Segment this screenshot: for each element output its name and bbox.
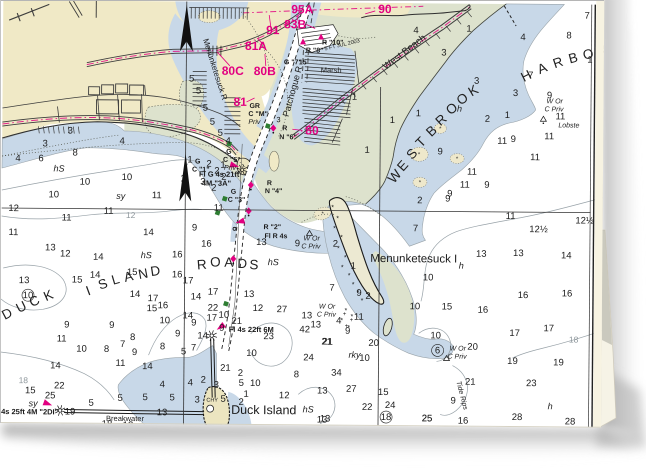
svg-text:C "3": C "3"	[228, 197, 246, 204]
svg-text:13: 13	[476, 249, 487, 260]
svg-text:N "4": N "4"	[265, 188, 283, 195]
svg-text:95A: 95A	[291, 2, 313, 16]
svg-text:16: 16	[158, 300, 169, 311]
svg-text:12: 12	[8, 203, 19, 214]
svg-text:A: A	[224, 255, 233, 270]
svg-text:13: 13	[256, 237, 267, 248]
svg-text:9: 9	[192, 223, 197, 234]
svg-text:5: 5	[196, 86, 201, 97]
svg-text:15: 15	[25, 385, 36, 396]
svg-text:27: 27	[346, 384, 357, 395]
svg-text:*: *	[336, 216, 339, 223]
svg-text:15: 15	[442, 301, 453, 312]
svg-text:10: 10	[23, 290, 34, 301]
svg-text:4s 25ft 4M "2DI": 4s 25ft 4M "2DI"	[1, 407, 59, 416]
svg-text:5: 5	[143, 392, 148, 403]
svg-text:3: 3	[200, 177, 205, 188]
svg-text:9: 9	[445, 193, 450, 204]
svg-text:4: 4	[160, 379, 165, 390]
svg-text:14: 14	[561, 250, 572, 261]
svg-text:21: 21	[321, 337, 332, 348]
svg-text:4: 4	[413, 25, 418, 36]
svg-text:11: 11	[57, 333, 67, 344]
svg-text:10: 10	[80, 177, 91, 188]
svg-text:15: 15	[378, 387, 389, 398]
svg-text:16: 16	[201, 239, 212, 250]
svg-text:W Or: W Or	[303, 235, 320, 242]
svg-text:8: 8	[160, 341, 165, 352]
svg-text:18: 18	[381, 412, 392, 423]
svg-text:16: 16	[562, 288, 573, 299]
svg-text:Lobste: Lobste	[558, 122, 579, 129]
svg-text:15: 15	[147, 303, 158, 314]
svg-text:11: 11	[555, 111, 565, 122]
svg-text:Fl R 4s: Fl R 4s	[264, 233, 287, 240]
svg-text:R: R	[196, 257, 207, 273]
svg-text:10: 10	[430, 330, 441, 341]
svg-text:hS: hS	[141, 250, 152, 260]
svg-text:9: 9	[219, 323, 224, 334]
svg-text:14: 14	[191, 291, 202, 302]
svg-text:5: 5	[203, 103, 208, 114]
svg-text:5: 5	[210, 117, 215, 128]
svg-text:9: 9	[437, 146, 442, 157]
svg-text:W Or: W Or	[319, 304, 336, 311]
svg-text:1: 1	[466, 24, 471, 35]
svg-text:hS: hS	[268, 257, 279, 267]
svg-text:11: 11	[62, 212, 72, 223]
svg-text:14: 14	[50, 360, 61, 371]
svg-text:S: S	[249, 257, 259, 272]
svg-text:90: 90	[378, 2, 392, 16]
svg-text:R "8": R "8"	[306, 47, 324, 54]
svg-text:80: 80	[305, 123, 319, 137]
svg-text:8: 8	[566, 30, 571, 41]
svg-text:12: 12	[126, 210, 136, 220]
svg-text:10: 10	[48, 189, 59, 200]
svg-text:8: 8	[130, 332, 135, 343]
svg-text:C "M": C "M"	[248, 111, 268, 118]
svg-text:8: 8	[294, 369, 299, 380]
svg-text:17: 17	[509, 328, 520, 339]
svg-text:3: 3	[441, 47, 446, 58]
svg-text:5: 5	[239, 378, 244, 389]
svg-text:hS: hS	[53, 163, 64, 173]
svg-text:25: 25	[422, 413, 433, 424]
svg-text:2: 2	[485, 114, 490, 125]
svg-text:80C: 80C	[222, 64, 244, 78]
svg-text:16: 16	[458, 416, 469, 427]
svg-text:10: 10	[250, 378, 261, 389]
svg-text:4: 4	[336, 316, 341, 327]
svg-text:R "2": R "2"	[264, 224, 282, 231]
svg-text:*: *	[341, 265, 344, 272]
svg-text:11: 11	[467, 167, 477, 178]
svg-text:2: 2	[333, 239, 338, 250]
svg-text:9: 9	[511, 134, 516, 145]
svg-text:4M "3A": 4M "3A"	[202, 179, 232, 188]
svg-text:7: 7	[585, 11, 590, 22]
svg-text:2: 2	[365, 291, 370, 302]
svg-text:8: 8	[104, 344, 109, 355]
svg-text:7: 7	[329, 283, 334, 294]
svg-text:N "6": N "6"	[279, 134, 297, 141]
svg-text:R: R	[267, 180, 272, 187]
svg-text:13: 13	[513, 248, 524, 259]
svg-text:*: *	[340, 235, 343, 242]
svg-text:18: 18	[19, 375, 29, 385]
svg-text:9: 9	[356, 288, 361, 299]
svg-text:11: 11	[544, 131, 554, 142]
svg-text:1: 1	[587, 55, 592, 66]
svg-text:11: 11	[152, 190, 162, 201]
svg-text:1: 1	[187, 154, 192, 165]
svg-text:7: 7	[528, 70, 533, 81]
svg-text:24: 24	[385, 400, 396, 411]
svg-text:9: 9	[109, 320, 114, 331]
svg-text:2: 2	[206, 159, 211, 170]
svg-text:14: 14	[130, 289, 141, 300]
svg-text:CHY: CHY	[206, 398, 218, 404]
svg-text:12: 12	[279, 390, 290, 401]
svg-text:4: 4	[520, 32, 525, 43]
svg-text:10: 10	[359, 353, 370, 364]
svg-text:C Priv: C Priv	[301, 243, 321, 250]
svg-text:4: 4	[15, 153, 20, 164]
svg-text:81: 81	[233, 95, 247, 109]
svg-text:14: 14	[93, 252, 104, 263]
svg-text:83B: 83B	[284, 17, 306, 31]
svg-text:3: 3	[68, 126, 73, 137]
svg-text:W Or: W Or	[450, 346, 467, 353]
svg-text:16: 16	[518, 290, 529, 301]
svg-text:+: +	[343, 312, 347, 318]
svg-text:5: 5	[181, 346, 186, 357]
svg-text:15: 15	[72, 275, 83, 286]
svg-text:12½: 12½	[529, 224, 548, 235]
svg-text:28: 28	[565, 416, 576, 427]
svg-text:11: 11	[214, 203, 224, 214]
svg-text:10: 10	[246, 348, 257, 359]
svg-text:3: 3	[513, 88, 518, 99]
svg-text:13: 13	[317, 385, 328, 396]
svg-text:14: 14	[143, 227, 154, 238]
svg-text:G: G	[226, 149, 232, 156]
svg-text:C Priv: C Priv	[448, 354, 468, 361]
svg-text:3: 3	[194, 395, 199, 406]
svg-text:3: 3	[474, 76, 479, 87]
svg-text:15: 15	[127, 267, 138, 278]
svg-text:3: 3	[43, 138, 48, 149]
svg-text:21: 21	[220, 363, 231, 374]
svg-text:6: 6	[435, 345, 440, 356]
svg-text:17: 17	[208, 287, 219, 298]
svg-text:27: 27	[277, 304, 288, 315]
svg-text:17: 17	[206, 313, 217, 324]
svg-text:34: 34	[331, 368, 342, 379]
svg-text:1: 1	[244, 389, 249, 400]
svg-text:C Priv: C Priv	[317, 311, 337, 318]
svg-text:11: 11	[354, 312, 364, 323]
svg-text:10: 10	[423, 272, 434, 283]
svg-text:6: 6	[38, 153, 43, 164]
svg-text:7: 7	[413, 223, 418, 234]
svg-text:11: 11	[115, 358, 125, 369]
svg-text:18: 18	[569, 334, 579, 344]
svg-text:*: *	[361, 298, 364, 305]
svg-text:5: 5	[170, 392, 175, 403]
svg-text:14: 14	[90, 270, 101, 281]
svg-text:9: 9	[345, 326, 350, 337]
svg-text:sy: sy	[29, 398, 39, 408]
svg-text:19: 19	[507, 356, 518, 367]
svg-text:10: 10	[219, 310, 230, 321]
svg-text:19: 19	[553, 357, 564, 368]
svg-text:2: 2	[201, 375, 206, 386]
svg-text:16: 16	[172, 249, 183, 260]
svg-text:h: h	[457, 104, 462, 114]
svg-text:R: R	[282, 125, 287, 132]
svg-text:D: D	[237, 256, 247, 271]
svg-text:2: 2	[211, 183, 216, 194]
svg-text:9: 9	[484, 180, 489, 191]
svg-text:14: 14	[197, 331, 208, 342]
svg-text:11: 11	[9, 227, 19, 238]
svg-text:42: 42	[299, 324, 310, 335]
svg-text:4: 4	[120, 136, 125, 147]
svg-text:13: 13	[45, 242, 56, 253]
svg-text:9: 9	[547, 90, 552, 101]
svg-text:8: 8	[72, 148, 77, 159]
svg-text:Priv: Priv	[248, 119, 261, 126]
svg-text:13: 13	[310, 319, 321, 330]
svg-text:80B: 80B	[254, 64, 276, 78]
svg-text:7: 7	[120, 339, 125, 350]
svg-text:1: 1	[505, 110, 510, 121]
svg-text:14: 14	[142, 361, 153, 372]
svg-text:12: 12	[60, 248, 71, 259]
svg-text:hS: hS	[303, 404, 314, 414]
svg-text:13: 13	[320, 414, 331, 425]
svg-text:5: 5	[221, 394, 226, 405]
svg-text:2: 2	[238, 368, 243, 379]
svg-text:28: 28	[512, 412, 523, 423]
svg-text:11: 11	[460, 180, 470, 191]
svg-text:G: G	[231, 189, 237, 196]
svg-text:81A: 81A	[245, 39, 267, 53]
svg-text:Menunketesuck I: Menunketesuck I	[370, 253, 457, 266]
svg-text:GR: GR	[249, 103, 260, 110]
svg-text:1: 1	[364, 145, 369, 156]
svg-text:10: 10	[122, 172, 133, 183]
svg-text:5: 5	[189, 73, 194, 84]
svg-text:23: 23	[526, 378, 537, 389]
svg-text:17: 17	[543, 323, 554, 334]
svg-text:20: 20	[368, 338, 379, 349]
svg-text:10: 10	[410, 301, 421, 312]
svg-text:11: 11	[506, 211, 516, 222]
svg-text:1: 1	[352, 92, 357, 103]
svg-text:16: 16	[172, 269, 183, 280]
svg-text:22: 22	[362, 402, 373, 413]
svg-text:20: 20	[467, 342, 478, 353]
svg-text:25: 25	[45, 390, 56, 401]
svg-text:1: 1	[390, 115, 395, 126]
svg-text:h: h	[459, 261, 464, 271]
svg-text:12½: 12½	[575, 216, 594, 227]
svg-text:5: 5	[88, 398, 93, 409]
svg-text:12: 12	[253, 303, 264, 314]
svg-text:5: 5	[118, 393, 123, 404]
svg-text:22: 22	[54, 380, 65, 391]
svg-text:21: 21	[465, 377, 476, 388]
svg-text:91: 91	[266, 23, 280, 37]
svg-text:*: *	[352, 282, 355, 289]
svg-text:9: 9	[295, 238, 300, 249]
svg-text:9: 9	[175, 328, 180, 339]
svg-text:3: 3	[214, 380, 219, 391]
svg-text:15: 15	[299, 59, 307, 66]
svg-text:10: 10	[76, 344, 87, 355]
svg-text:G: G	[195, 159, 201, 166]
svg-text:3: 3	[276, 115, 280, 124]
svg-text:9: 9	[132, 347, 137, 358]
svg-text:10: 10	[159, 315, 170, 326]
svg-text:*: *	[333, 226, 336, 233]
svg-text:21: 21	[231, 316, 242, 327]
svg-text:2: 2	[214, 166, 219, 177]
svg-text:O: O	[210, 254, 221, 269]
svg-text:19: 19	[65, 407, 76, 418]
svg-text:2: 2	[417, 195, 422, 206]
svg-text:h: h	[548, 401, 553, 411]
svg-text:sy: sy	[116, 191, 126, 201]
svg-text:16: 16	[478, 305, 489, 316]
svg-text:11: 11	[497, 136, 507, 147]
svg-text:24: 24	[303, 352, 314, 363]
svg-text:23: 23	[263, 331, 274, 342]
svg-text:Marsh: Marsh	[321, 66, 342, 75]
svg-text:4: 4	[226, 136, 231, 147]
svg-text:1: 1	[220, 160, 225, 171]
svg-text:9: 9	[64, 320, 69, 331]
svg-text:1: 1	[351, 261, 356, 272]
svg-text:13: 13	[244, 289, 255, 300]
svg-text:2: 2	[221, 172, 226, 183]
svg-text:*: *	[348, 273, 351, 280]
svg-text:4: 4	[188, 377, 193, 388]
svg-text:11: 11	[104, 206, 114, 217]
svg-text:13: 13	[19, 275, 30, 286]
svg-text:*: *	[344, 255, 347, 262]
svg-text:9: 9	[450, 396, 455, 407]
svg-text:13: 13	[157, 407, 168, 418]
svg-text:11: 11	[530, 152, 540, 163]
svg-text:7: 7	[191, 342, 196, 353]
svg-text:1: 1	[416, 108, 421, 119]
svg-text:5: 5	[218, 128, 223, 139]
